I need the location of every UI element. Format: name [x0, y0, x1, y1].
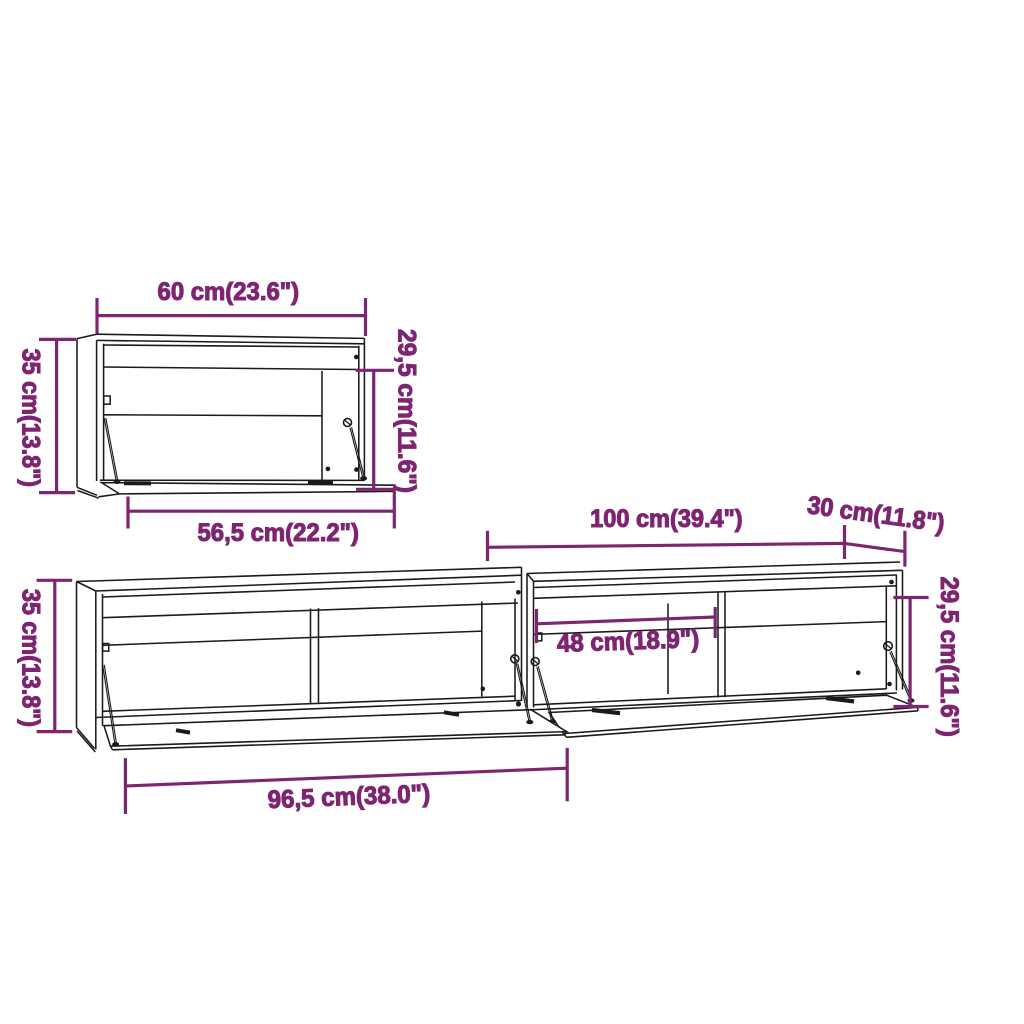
- svg-text:56,5 cm(22.2"): 56,5 cm(22.2"): [198, 519, 359, 547]
- svg-text:100 cm(39.4"): 100 cm(39.4"): [590, 505, 743, 533]
- svg-text:35 cm(13.8"): 35 cm(13.8"): [16, 349, 44, 487]
- svg-text:48 cm(18.9"): 48 cm(18.9"): [557, 625, 700, 658]
- svg-text:29,5 cm(11.6"): 29,5 cm(11.6"): [393, 329, 421, 493]
- svg-text:35 cm(13.8"): 35 cm(13.8"): [17, 589, 45, 727]
- svg-text:29,5 cm(11.6"): 29,5 cm(11.6"): [935, 577, 963, 737]
- svg-text:60 cm(23.6"): 60 cm(23.6"): [158, 278, 299, 306]
